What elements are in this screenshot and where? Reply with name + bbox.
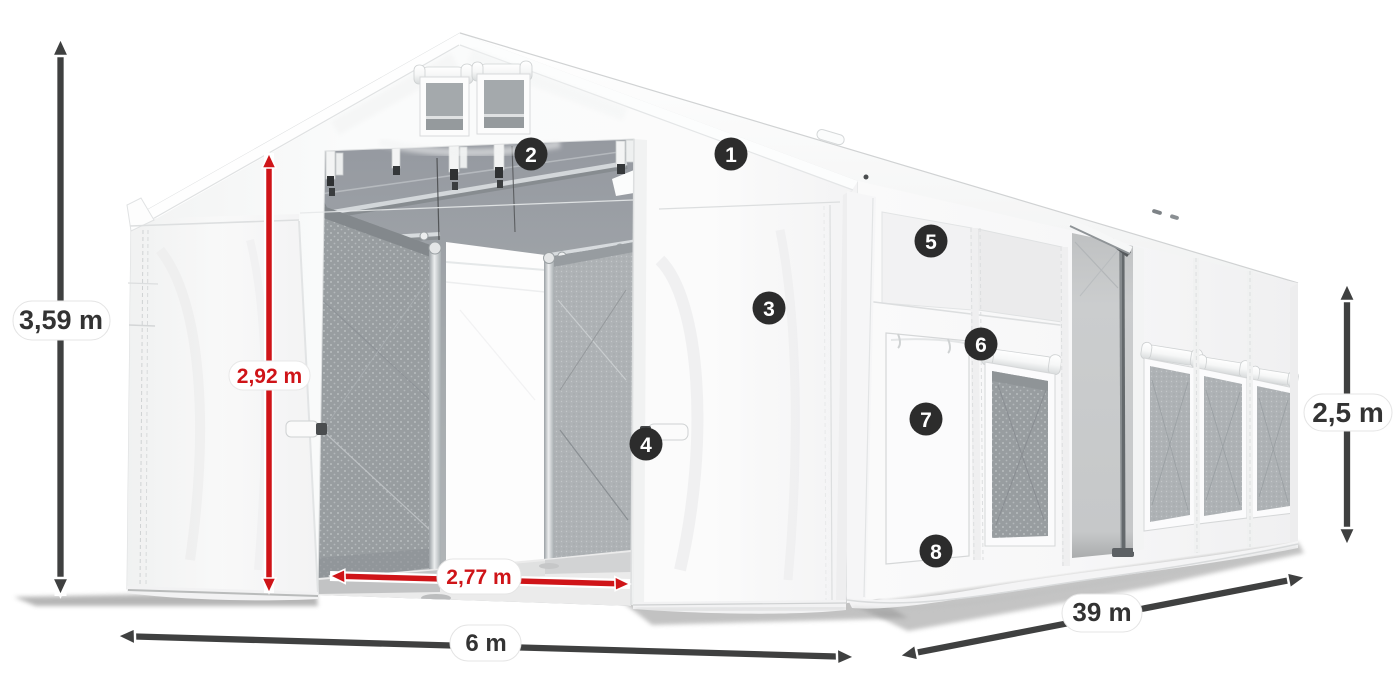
- svg-text:2,5 m: 2,5 m: [1312, 397, 1384, 428]
- svg-text:2,77 m: 2,77 m: [446, 566, 511, 589]
- svg-text:8: 8: [930, 541, 942, 564]
- svg-text:5: 5: [925, 231, 937, 254]
- svg-text:2: 2: [525, 144, 537, 167]
- svg-text:2,92 m: 2,92 m: [237, 365, 302, 388]
- svg-text:4: 4: [640, 434, 652, 457]
- svg-text:39 m: 39 m: [1072, 597, 1131, 627]
- svg-text:7: 7: [920, 409, 932, 432]
- svg-text:1: 1: [725, 144, 737, 167]
- svg-text:6: 6: [975, 334, 987, 357]
- svg-text:6 m: 6 m: [465, 630, 506, 657]
- svg-text:3,59 m: 3,59 m: [19, 305, 103, 335]
- svg-text:3: 3: [763, 298, 775, 321]
